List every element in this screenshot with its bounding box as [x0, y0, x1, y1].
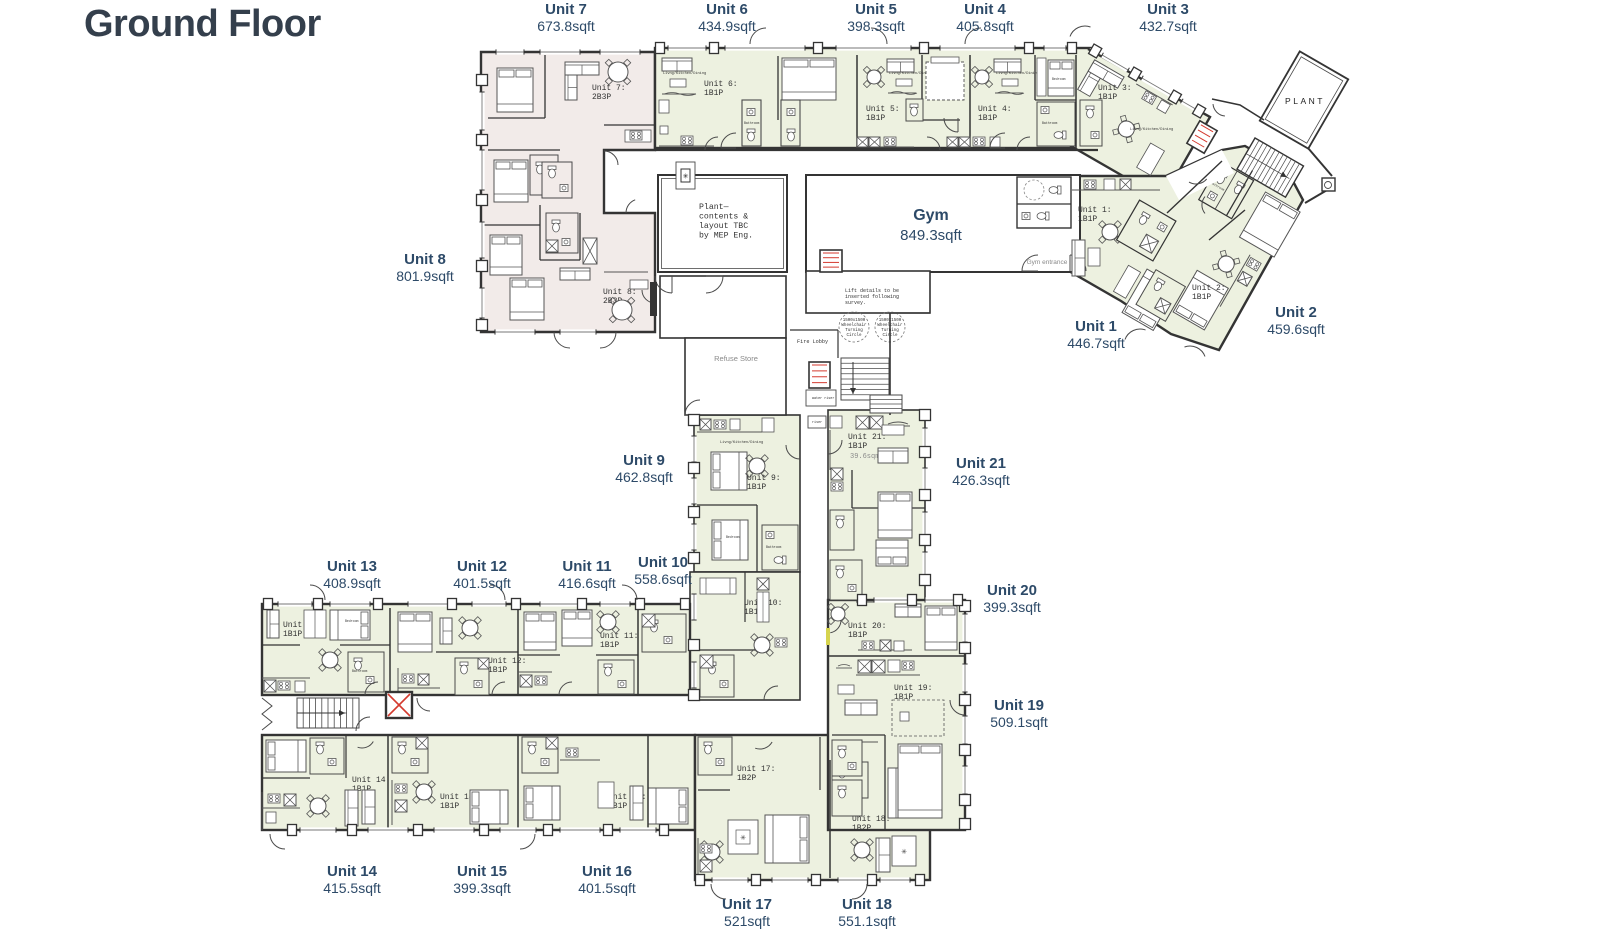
svg-text:water riser: water riser — [812, 396, 834, 401]
svg-text:Unit 5:: Unit 5: — [866, 105, 900, 114]
svg-text:1B1P: 1B1P — [1098, 93, 1117, 102]
svg-text:Unit 19:: Unit 19: — [894, 684, 932, 693]
svg-text:558.6sqft: 558.6sqft — [634, 571, 692, 587]
svg-text:Bedroom: Bedroom — [345, 619, 358, 623]
svg-text:432.7sqft: 432.7sqft — [1139, 18, 1197, 34]
svg-text:459.6sqft: 459.6sqft — [1267, 321, 1325, 337]
svg-text:Refuse Store: Refuse Store — [714, 354, 758, 363]
svg-text:Livng/Kitchen/Dining: Livng/Kitchen/Dining — [663, 71, 706, 76]
svg-text:Bedroom: Bedroom — [1052, 77, 1065, 81]
svg-text:Unit 11:: Unit 11: — [600, 632, 638, 641]
svg-text:1B1P: 1B1P — [1192, 293, 1211, 302]
svg-text:Unit 20:: Unit 20: — [848, 622, 886, 631]
svg-text:Unit 13: Unit 13 — [327, 558, 377, 575]
svg-text:Unit 7:: Unit 7: — [592, 84, 626, 93]
svg-text:1B1P: 1B1P — [866, 114, 885, 123]
svg-text:849.3sqft: 849.3sqft — [900, 227, 963, 244]
svg-text:Unit 3: Unit 3 — [1147, 1, 1189, 18]
svg-text:Unit 17:: Unit 17: — [737, 765, 775, 774]
svg-text:Ground Floor: Ground Floor — [84, 3, 321, 45]
svg-text:Unit 2: Unit 2 — [1275, 304, 1317, 321]
svg-text:Unit 7: Unit 7 — [545, 1, 587, 18]
svg-text:426.3sqft: 426.3sqft — [952, 472, 1010, 488]
svg-text:Unit 16: Unit 16 — [582, 863, 632, 880]
svg-text:551.1sqft: 551.1sqft — [838, 913, 896, 929]
svg-text:462.8sqft: 462.8sqft — [615, 469, 673, 485]
svg-text:Bathroom: Bathroom — [744, 121, 759, 125]
svg-text:Unit 9: Unit 9 — [623, 452, 665, 469]
svg-text:✳: ✳ — [683, 173, 689, 181]
svg-text:1B1P: 1B1P — [894, 693, 913, 702]
svg-text:Unit 12:: Unit 12: — [488, 657, 526, 666]
svg-text:1B1P: 1B1P — [747, 483, 766, 492]
svg-text:Unit 10: Unit 10 — [638, 554, 688, 571]
svg-text:Unit 15: Unit 15 — [457, 863, 507, 880]
svg-text:521sqft: 521sqft — [724, 913, 770, 929]
svg-text:Unit 18: Unit 18 — [842, 896, 892, 913]
svg-text:1B1P: 1B1P — [440, 802, 459, 811]
svg-text:Plant—: Plant— — [699, 202, 729, 212]
svg-text:Unit 2:: Unit 2: — [1192, 284, 1226, 293]
svg-text:Unit 6: Unit 6 — [706, 1, 748, 18]
svg-text:Unit 17: Unit 17 — [722, 896, 772, 913]
svg-text:1B2P: 1B2P — [737, 774, 756, 783]
svg-text:Unit 4:: Unit 4: — [978, 105, 1012, 114]
svg-text:Unit 9:: Unit 9: — [747, 474, 781, 483]
svg-text:survey.: survey. — [845, 300, 866, 306]
svg-text:Unit 20: Unit 20 — [987, 582, 1037, 599]
svg-text:by MEP Eng.: by MEP Eng. — [699, 231, 753, 241]
svg-text:Circle: Circle — [846, 333, 862, 338]
svg-text:Unit 21:: Unit 21: — [848, 433, 886, 442]
svg-text:layout TBC: layout TBC — [699, 221, 748, 231]
svg-text:Unit 12: Unit 12 — [457, 558, 507, 575]
svg-text:2B3P: 2B3P — [592, 93, 611, 102]
svg-text:401.5sqft: 401.5sqft — [453, 575, 511, 591]
svg-text:Turning: Turning — [845, 328, 863, 333]
svg-text:399.3sqft: 399.3sqft — [983, 599, 1041, 615]
svg-text:1B1P: 1B1P — [283, 630, 302, 639]
svg-text:1500x1500: 1500x1500 — [843, 319, 866, 323]
svg-text:Bathroom: Bathroom — [1042, 121, 1057, 125]
svg-text:801.9sqft: 801.9sqft — [396, 268, 454, 284]
svg-text:Unit 19: Unit 19 — [994, 697, 1044, 714]
svg-text:Livng/Kitchen/Dining: Livng/Kitchen/Dining — [720, 440, 763, 445]
svg-text:398.3sqft: 398.3sqft — [847, 18, 905, 34]
svg-text:415.5sqft: 415.5sqft — [323, 880, 381, 896]
svg-text:Unit 8: Unit 8 — [404, 251, 446, 268]
svg-text:Wheelchair: Wheelchair — [841, 323, 867, 328]
svg-text:1B1P: 1B1P — [704, 89, 723, 98]
svg-text:Bathroom: Bathroom — [766, 545, 781, 549]
svg-text:405.8sqft: 405.8sqft — [956, 18, 1014, 34]
svg-text:contents &: contents & — [699, 213, 748, 222]
svg-text:399.3sqft: 399.3sqft — [453, 880, 511, 896]
svg-text:Gym entrance: Gym entrance — [1027, 259, 1068, 266]
svg-text:Fire Lobby: Fire Lobby — [797, 339, 828, 345]
svg-text:Unit 1: Unit 1 — [1075, 318, 1117, 335]
svg-text:1B1P: 1B1P — [1078, 215, 1097, 224]
svg-text:416.6sqft: 416.6sqft — [558, 575, 616, 591]
svg-text:Livng/Kitchen/Dining: Livng/Kitchen/Dining — [1130, 127, 1173, 132]
svg-text:401.5sqft: 401.5sqft — [578, 880, 636, 896]
svg-text:1B1P: 1B1P — [848, 442, 867, 451]
svg-text:446.7sqft: 446.7sqft — [1067, 335, 1125, 351]
svg-text:Unit 4: Unit 4 — [964, 1, 1006, 18]
svg-text:Unit 11: Unit 11 — [562, 558, 611, 575]
svg-text:Unit 14:: Unit 14: — [352, 776, 390, 785]
svg-text:Gym: Gym — [913, 207, 949, 224]
svg-text:Unit 14: Unit 14 — [327, 863, 378, 880]
svg-text:1B1P: 1B1P — [488, 666, 507, 675]
svg-text:Bedroom: Bedroom — [726, 535, 739, 539]
svg-text:Livng/Kitchen/Dining: Livng/Kitchen/Dining — [996, 71, 1039, 76]
svg-text:434.9sqft: 434.9sqft — [698, 18, 756, 34]
svg-text:Unit 5: Unit 5 — [855, 1, 897, 18]
svg-text:39.6sqm: 39.6sqm — [850, 453, 879, 461]
svg-text:1B1P: 1B1P — [978, 114, 997, 123]
svg-text:Bathroom: Bathroom — [352, 669, 367, 673]
svg-text:✳: ✳ — [901, 848, 907, 856]
svg-text:Unit 3:: Unit 3: — [1098, 84, 1132, 93]
svg-text:✳: ✳ — [740, 834, 746, 842]
svg-text:509.1sqft: 509.1sqft — [990, 714, 1048, 730]
svg-text:1B1P: 1B1P — [600, 641, 619, 650]
svg-text:673.8sqft: 673.8sqft — [537, 18, 595, 34]
svg-text:1B2P: 1B2P — [852, 824, 871, 833]
svg-text:riser: riser — [812, 420, 822, 425]
svg-text:Unit 21: Unit 21 — [956, 455, 1006, 472]
svg-text:408.9sqft: 408.9sqft — [323, 575, 381, 591]
svg-text:PLANT: PLANT — [1285, 96, 1325, 106]
svg-text:1B1P: 1B1P — [848, 631, 867, 640]
svg-text:Unit 6:: Unit 6: — [704, 80, 738, 89]
svg-text:Unit 1:: Unit 1: — [1078, 206, 1112, 215]
